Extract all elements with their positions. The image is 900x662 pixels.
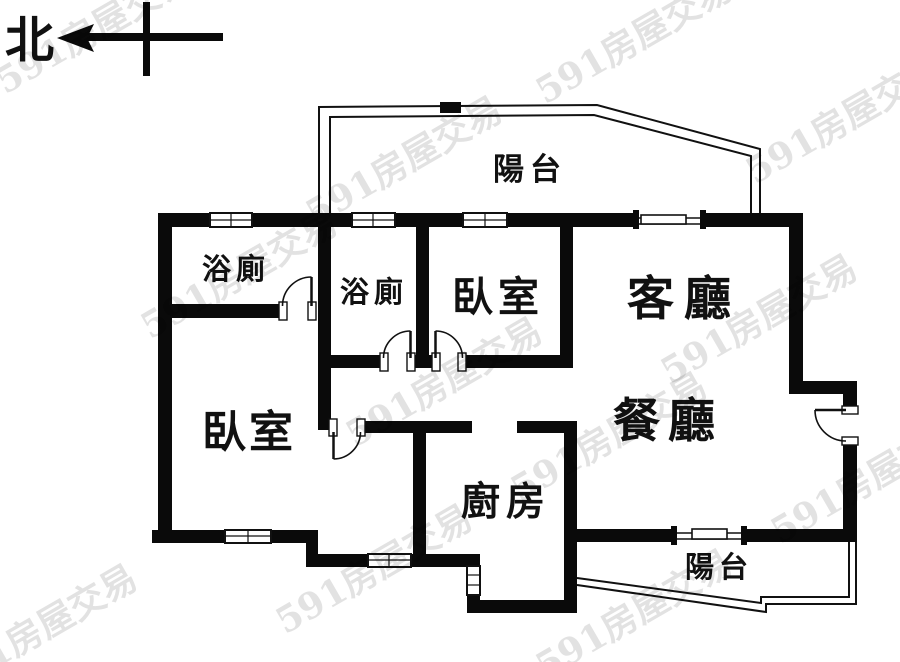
- sliding-door-jamb: [700, 210, 706, 229]
- sliding-door-jamb: [633, 210, 639, 229]
- wall-south-dining-a: [564, 529, 673, 542]
- wall-kitchen-south: [467, 600, 577, 613]
- room-label-bedroom-master: 臥室: [202, 407, 296, 458]
- wall-divider-bath2-bedroom: [416, 227, 429, 357]
- wall-top-a: [158, 213, 210, 227]
- window-bath2: [352, 213, 395, 227]
- floor-plan-svg: 北: [0, 0, 900, 662]
- sliding-door-jamb: [671, 526, 677, 545]
- wall-bedroom-small-east: [560, 213, 573, 368]
- sliding-panel: [692, 529, 727, 539]
- wall-kitchen-north: [517, 421, 564, 433]
- floor-plan-page: 北: [0, 0, 900, 662]
- wall-top-e: [705, 213, 803, 227]
- window-master-south: [225, 530, 271, 543]
- room-label-bath-2: 浴廁: [340, 275, 408, 309]
- sliding-panel: [641, 215, 686, 224]
- wall-left-outer: [158, 213, 172, 543]
- window-bedroom-small: [463, 213, 507, 227]
- wall-hall-north-a: [331, 355, 385, 368]
- window-bath1: [210, 213, 252, 227]
- wall-top-c: [395, 213, 463, 227]
- wall-south-master-a: [152, 530, 225, 543]
- sliding-door-jamb: [741, 526, 747, 545]
- window-kitchen: [467, 566, 480, 595]
- room-label-balcony-top: 陽台: [493, 152, 567, 188]
- wall-divider-bath1: [318, 227, 331, 430]
